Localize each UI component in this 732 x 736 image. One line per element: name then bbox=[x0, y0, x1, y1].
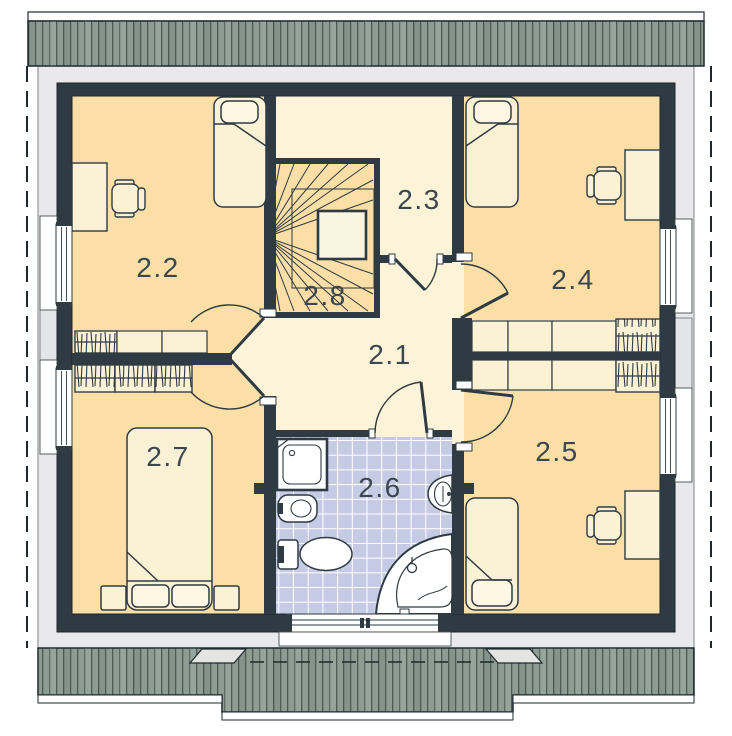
roof-bottom bbox=[38, 648, 694, 720]
window-right-2 bbox=[660, 388, 692, 482]
room-label-2-8: 2.8 bbox=[303, 280, 346, 311]
floor-plan-page: 2.1 2.2 2.3 2.4 2.5 2.6 2.7 2.8 bbox=[0, 0, 732, 736]
wall-recess-right bbox=[675, 318, 692, 392]
nightstand-icon bbox=[214, 586, 239, 610]
wardrobe-right-top-icon bbox=[472, 319, 660, 352]
wardrobe-right-bottom-icon bbox=[472, 360, 660, 392]
bed-icon-2-5 bbox=[466, 498, 518, 610]
room-label-2-2: 2.2 bbox=[136, 252, 179, 283]
floor-plan-drawing: 2.1 2.2 2.3 2.4 2.5 2.6 2.7 2.8 bbox=[0, 0, 732, 736]
room-label-2-7: 2.7 bbox=[146, 441, 189, 472]
bed-icon-2-4 bbox=[466, 97, 518, 207]
bidet-icon bbox=[278, 495, 317, 522]
roof-top bbox=[28, 12, 704, 66]
window-left-1 bbox=[40, 216, 72, 310]
room-label-2-6: 2.6 bbox=[358, 472, 401, 503]
shower-icon bbox=[277, 439, 327, 490]
toilet-icon bbox=[278, 538, 352, 571]
room-label-2-1: 2.1 bbox=[368, 339, 411, 370]
nightstand-icon bbox=[101, 586, 126, 610]
wardrobe-left-top-icon bbox=[75, 331, 207, 353]
window-left-2 bbox=[40, 360, 72, 454]
room-label-2-3: 2.3 bbox=[397, 184, 440, 215]
bed-icon-2-2 bbox=[214, 97, 266, 207]
room-label-2-5: 2.5 bbox=[535, 436, 578, 467]
stair-void bbox=[318, 211, 366, 259]
window-bottom bbox=[279, 614, 451, 646]
wardrobe-left-bottom-icon bbox=[75, 365, 192, 392]
room-label-2-4: 2.4 bbox=[551, 264, 594, 295]
window-right-1 bbox=[660, 219, 692, 313]
wall-recess-left bbox=[40, 308, 57, 364]
